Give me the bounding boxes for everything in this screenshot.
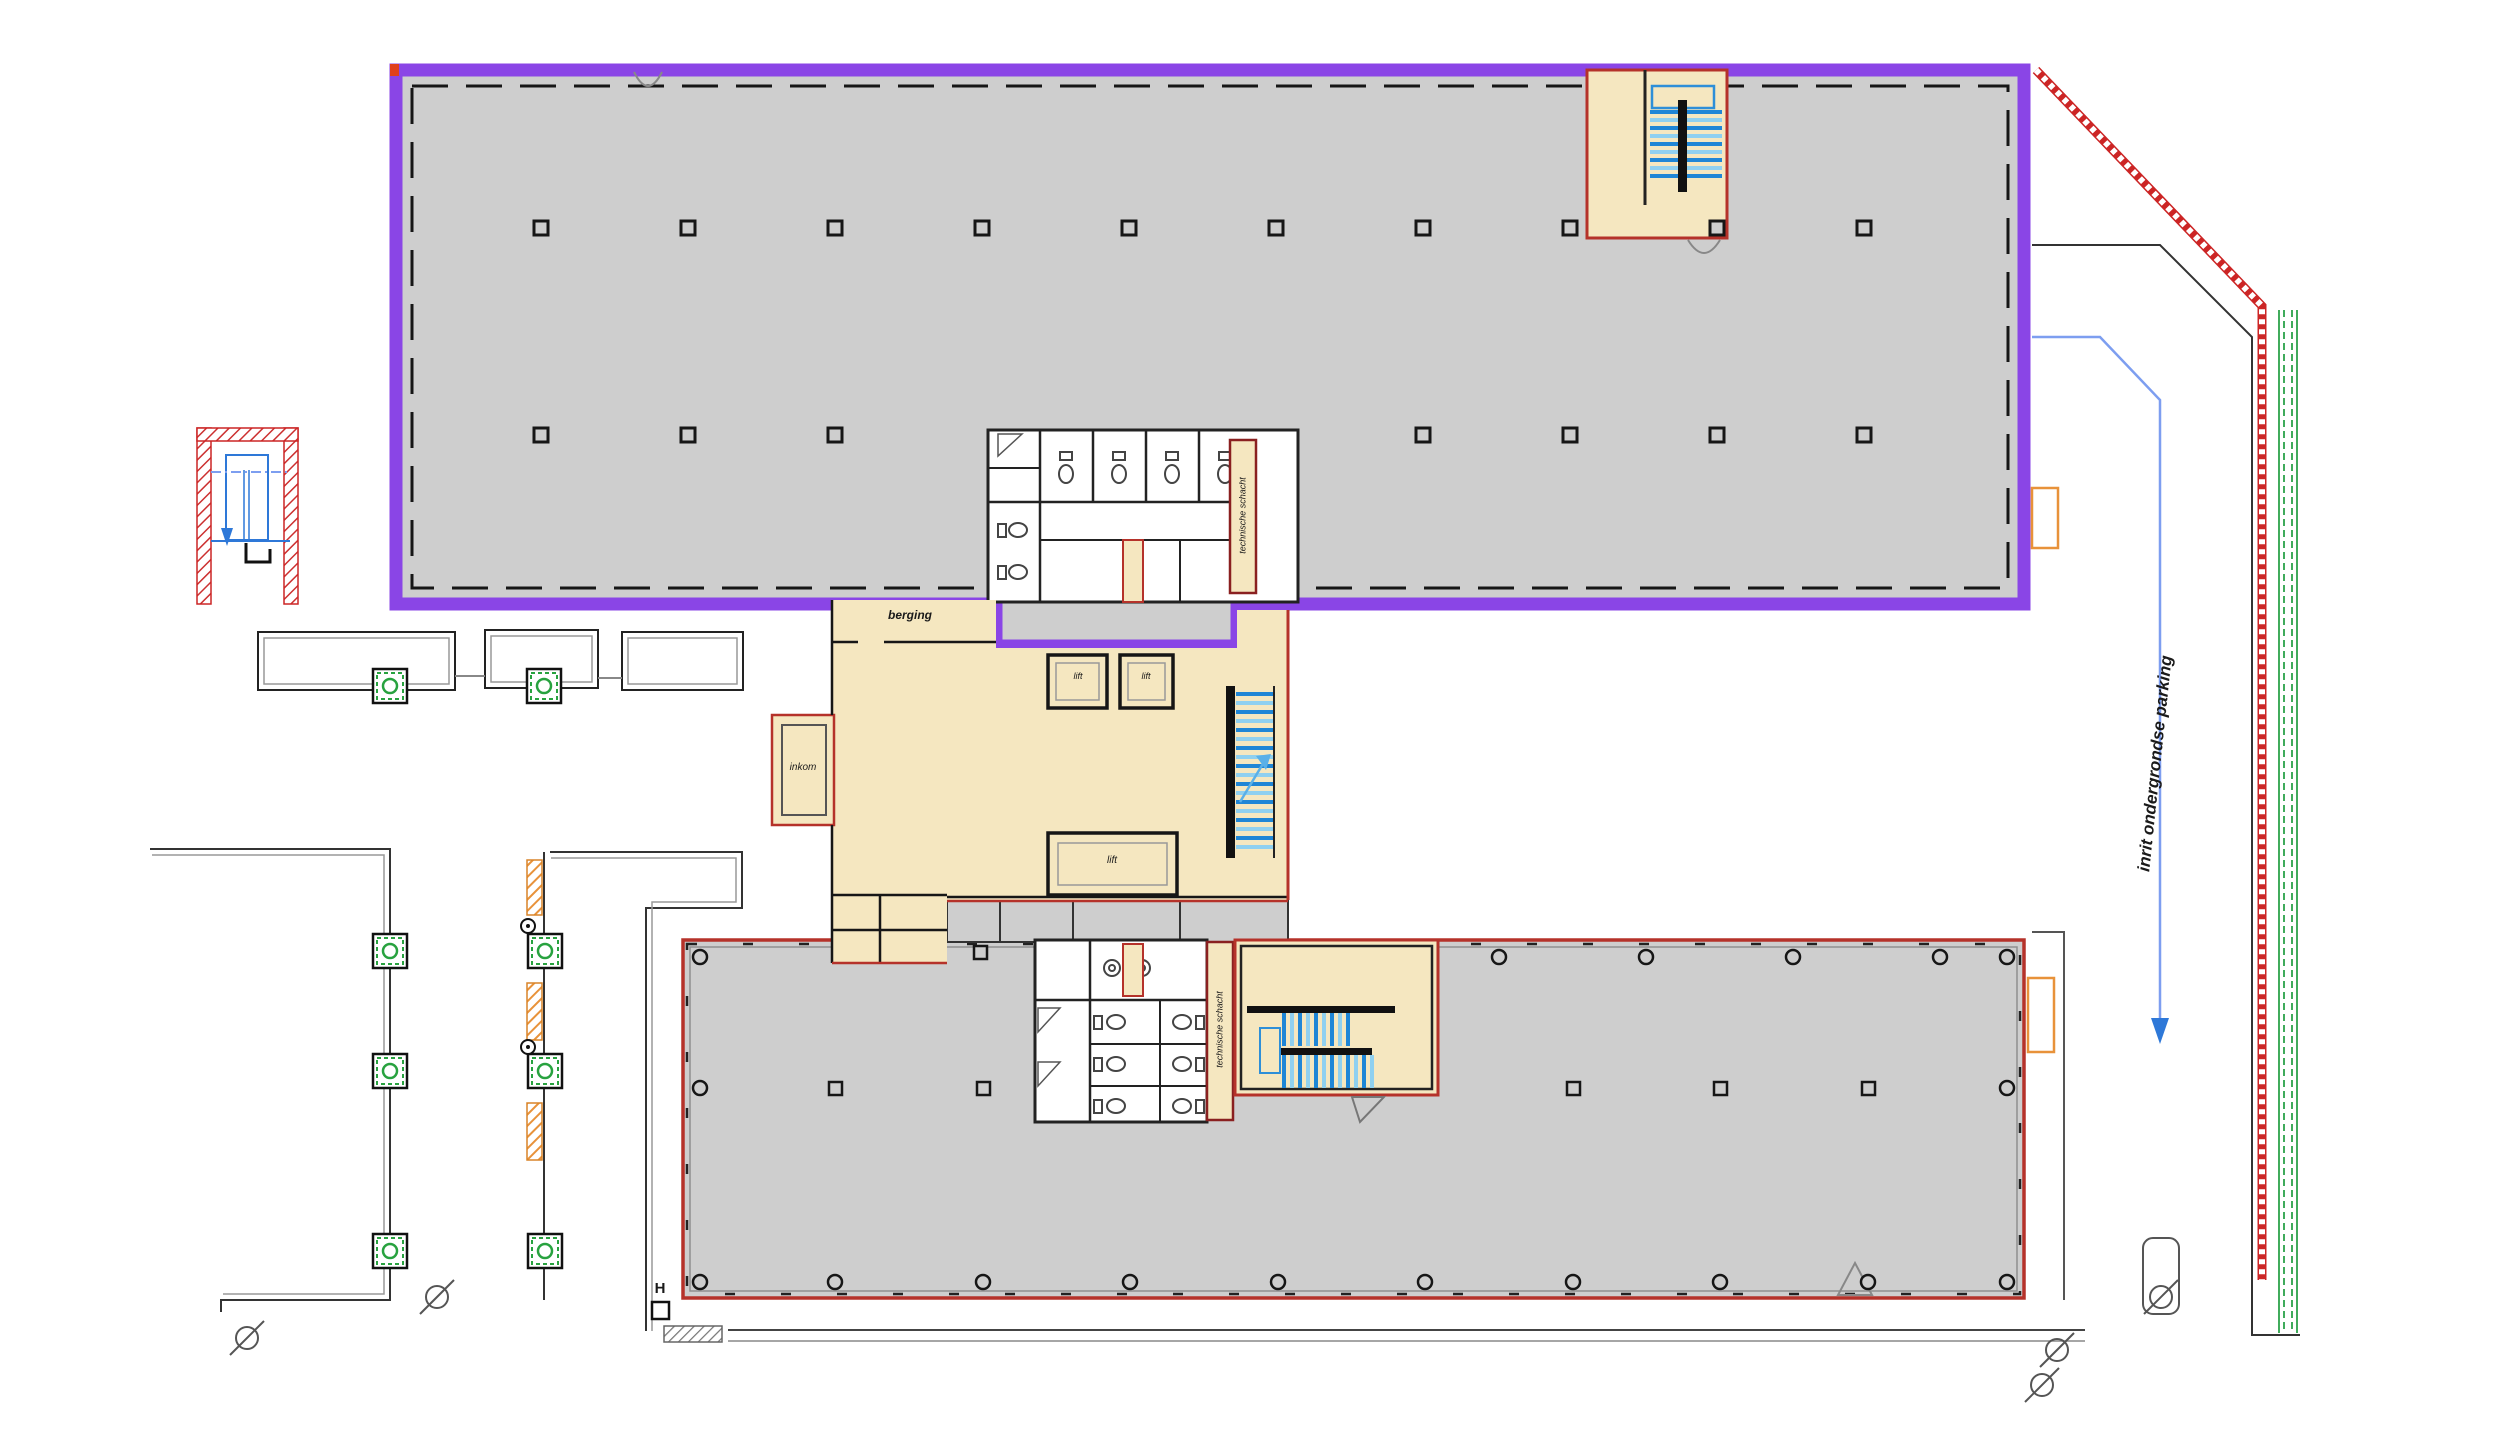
column-marker <box>1933 950 1947 964</box>
floor-plan-page: berging lift lift lift inkom technische … <box>0 0 2519 1440</box>
column-marker <box>693 1081 707 1095</box>
column-marker <box>1122 221 1136 235</box>
column-marker <box>977 1082 990 1095</box>
tree-planter <box>528 934 562 968</box>
column-marker <box>534 428 548 442</box>
ramp-step <box>246 543 270 562</box>
toilet-block-lower <box>1035 940 1233 1122</box>
stair-stringer <box>1247 1006 1395 1013</box>
ramp-wall <box>284 428 298 604</box>
column-marker <box>1710 428 1724 442</box>
column-marker <box>693 950 707 964</box>
ramp-arrow-down <box>221 528 233 546</box>
column-marker <box>693 1275 707 1289</box>
diameter-symbol <box>230 1321 264 1355</box>
tree-planter <box>373 1054 407 1088</box>
survey-marker <box>521 1040 535 1054</box>
column-marker <box>1563 428 1577 442</box>
column-marker <box>975 221 989 235</box>
column-marker <box>1271 1275 1285 1289</box>
column-marker <box>1566 1275 1580 1289</box>
column-marker <box>1123 1275 1137 1289</box>
column-marker <box>976 1275 990 1289</box>
floor-plan-drawing <box>0 0 2519 1440</box>
column-marker <box>534 221 548 235</box>
column-marker <box>1786 950 1800 964</box>
toilet-block-upper <box>988 430 1298 602</box>
road-edge-red-hatch <box>2036 70 2262 1280</box>
column-marker <box>681 428 695 442</box>
hydrant-marker-box <box>652 1302 669 1319</box>
column-marker <box>1862 1082 1875 1095</box>
planter-box <box>622 632 743 690</box>
tree-planter <box>528 1054 562 1088</box>
tree-planter <box>373 669 407 703</box>
stairwell-lower <box>1235 940 1438 1122</box>
ramp-wall <box>197 428 211 604</box>
pavement-hatch <box>664 1326 722 1342</box>
orange-hatch-marker <box>527 1103 542 1160</box>
parking-ramp-line <box>2032 337 2160 1022</box>
room-label-entrance: inkom <box>776 763 830 773</box>
column-marker <box>1710 221 1724 235</box>
tree-planter <box>373 934 407 968</box>
service-strip <box>947 898 1288 942</box>
walkway-left-inner <box>152 855 384 1294</box>
tree-planter <box>373 1234 407 1268</box>
planter-row <box>258 630 743 690</box>
room-label-lift-1: lift <box>1050 672 1106 681</box>
orange-hatch-marker <box>527 983 542 1040</box>
stair-stringer <box>1226 686 1235 858</box>
room-label-technical-shaft-upper: technische schacht <box>1239 441 1248 591</box>
stair-stringer <box>1678 100 1687 192</box>
parking-ramp-arrow <box>2151 1018 2169 1044</box>
shaft <box>1123 540 1143 602</box>
column-marker <box>1857 428 1871 442</box>
column-marker <box>681 221 695 235</box>
green-boundary-line <box>2279 310 2297 1333</box>
column-marker <box>1416 221 1430 235</box>
column-marker <box>1269 221 1283 235</box>
column-marker <box>1639 950 1653 964</box>
column-marker <box>1563 221 1577 235</box>
column-marker <box>1492 950 1506 964</box>
column-marker <box>828 428 842 442</box>
ramp-run <box>226 455 268 540</box>
column-marker <box>2000 1081 2014 1095</box>
column-marker <box>974 946 987 959</box>
column-marker <box>1567 1082 1580 1095</box>
ramp-wall <box>197 428 298 441</box>
column-marker <box>1714 1082 1727 1095</box>
column-marker <box>1418 1275 1432 1289</box>
planter-box <box>258 632 455 690</box>
tree-planter <box>528 1234 562 1268</box>
column-marker <box>1861 1275 1875 1289</box>
tree-planter <box>527 669 561 703</box>
basement-ramp <box>197 428 298 604</box>
room-label-lift-2: lift <box>1118 672 1174 681</box>
parking-bay <box>2143 1238 2179 1314</box>
column-marker <box>2000 1275 2014 1289</box>
walkway-left <box>150 849 390 1312</box>
room-label-lift-3: lift <box>1078 856 1146 866</box>
column-marker <box>829 1082 842 1095</box>
column-marker <box>1713 1275 1727 1289</box>
room-label-storage: berging <box>872 609 948 621</box>
diameter-symbol <box>2025 1368 2059 1402</box>
road-edge-red-hatch-texture <box>2036 70 2262 1280</box>
stairwell-upper <box>1587 70 1727 253</box>
facade-marker-lower <box>2028 978 2054 1052</box>
survey-marker <box>521 919 535 933</box>
orange-hatch-marker <box>527 860 542 915</box>
column-marker <box>828 1275 842 1289</box>
hydrant-marker: H <box>650 1281 670 1296</box>
shaft <box>1123 944 1143 996</box>
column-marker <box>1416 428 1430 442</box>
datum-corner-mark <box>390 64 399 76</box>
diameter-symbol <box>2040 1333 2074 1367</box>
stair-stringer <box>1280 1048 1372 1055</box>
facade-marker-upper <box>2032 488 2058 548</box>
column-marker <box>2000 950 2014 964</box>
column-marker <box>828 221 842 235</box>
room-label-technical-shaft-lower: technische schacht <box>1216 953 1225 1107</box>
site-boundary-lines <box>652 1302 2085 1342</box>
diameter-symbol <box>420 1280 454 1314</box>
diameter-symbol <box>2144 1280 2178 1314</box>
column-marker <box>1857 221 1871 235</box>
